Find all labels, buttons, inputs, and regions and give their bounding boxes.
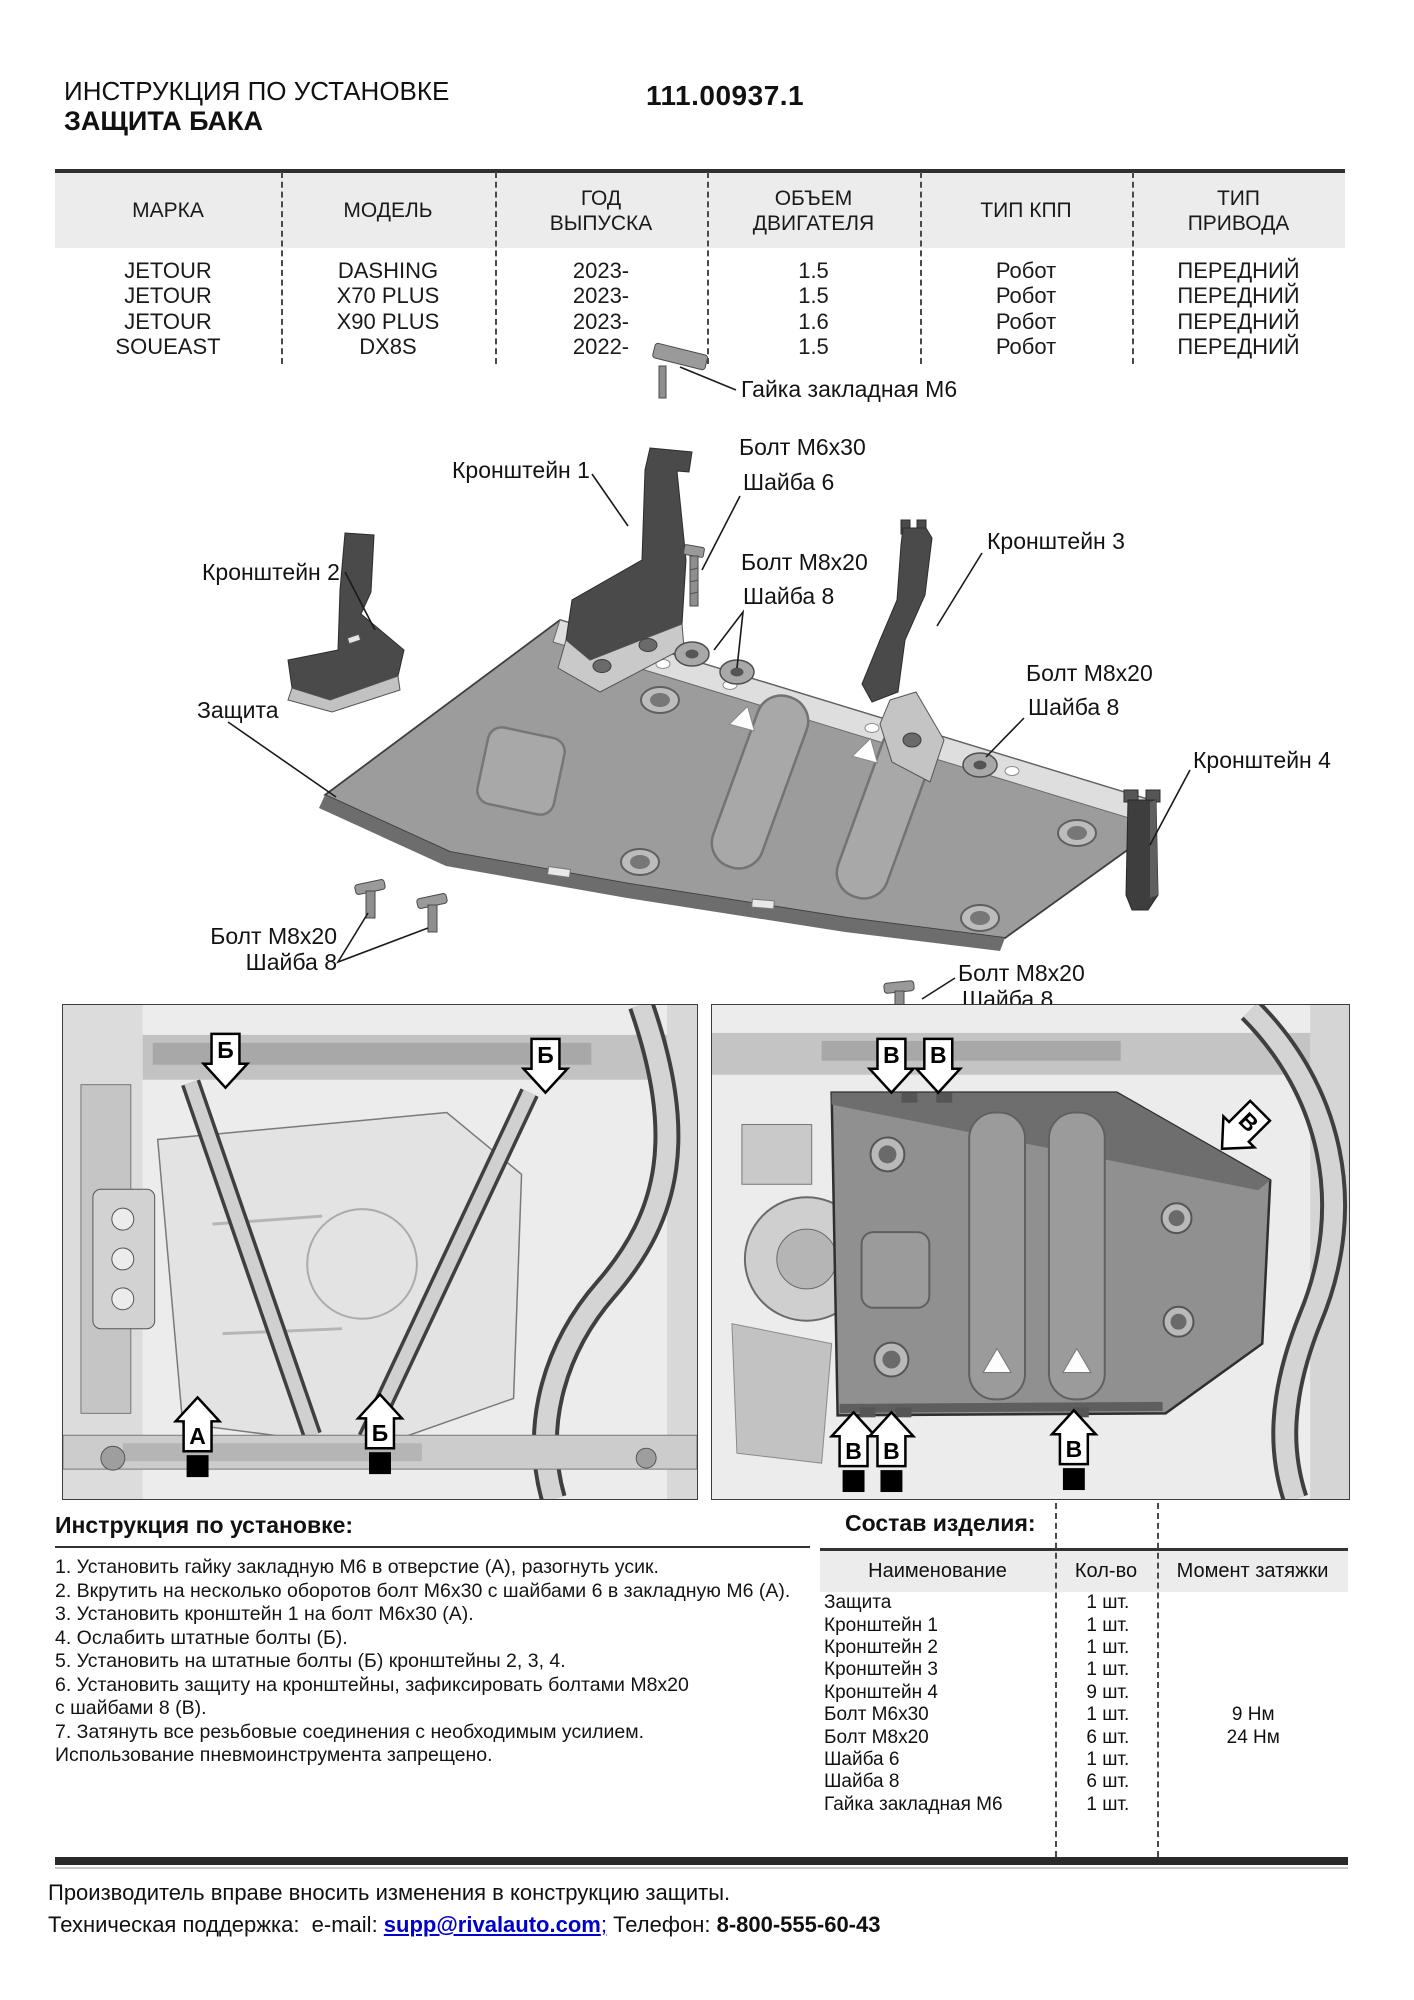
part-torque bbox=[1158, 1771, 1348, 1793]
col-header-year: ГОД ВЫПУСКА bbox=[495, 173, 707, 248]
part-name: Гайка закладная М6 bbox=[820, 1794, 1057, 1816]
parts-table-header: Наименование Кол-во Момент затяжки bbox=[820, 1551, 1348, 1592]
svg-text:Б: Б bbox=[372, 1420, 388, 1446]
svg-text:В: В bbox=[883, 1042, 900, 1068]
svg-text:Б: Б bbox=[537, 1042, 553, 1068]
svg-text:В: В bbox=[845, 1438, 862, 1464]
part-qty: 1 шт. bbox=[1057, 1592, 1158, 1614]
photo-left-art: Б Б А Б bbox=[63, 1005, 697, 1499]
footer-rule-shadow bbox=[55, 1867, 1348, 1869]
part-name: Защита bbox=[820, 1592, 1057, 1614]
support-line: Техническая поддержка: e-mail: supp@riva… bbox=[48, 1912, 880, 1938]
part-name: Кронштейн 4 bbox=[820, 1682, 1057, 1704]
install-step: 3. Установить кронштейн 1 на болт М6х30 … bbox=[55, 1603, 830, 1627]
part-qty: 1 шт. bbox=[1057, 1704, 1158, 1726]
disclaimer-text: Производитель вправе вносить изменения в… bbox=[48, 1880, 730, 1906]
parts-table: Наименование Кол-во Момент затяжки Защит… bbox=[820, 1551, 1348, 1816]
bolt-m6x30-icon bbox=[683, 544, 704, 606]
label-bracket-2: Кронштейн 2 bbox=[202, 559, 340, 585]
part-qty: 1 шт. bbox=[1057, 1794, 1158, 1816]
table-divider bbox=[1055, 1503, 1057, 1857]
part-qty: 1 шт. bbox=[1057, 1637, 1158, 1659]
label-bolt-m8x20-right: Болт М8х20 bbox=[1026, 660, 1153, 686]
parts-col-qty: Кол-во bbox=[1055, 1551, 1157, 1592]
label-bolt-m8x20-left: Болт М8х20 bbox=[741, 549, 868, 575]
part-name: Кронштейн 2 bbox=[820, 1637, 1057, 1659]
svg-text:В: В bbox=[1066, 1436, 1083, 1462]
part-number: 111.00937.1 bbox=[646, 80, 804, 112]
parts-row: Кронштейн 2 1 шт. bbox=[820, 1637, 1348, 1659]
label-washer-8-bl: Шайба 8 bbox=[246, 949, 337, 975]
label-bracket-4: Кронштейн 4 bbox=[1193, 747, 1331, 773]
part-torque bbox=[1158, 1592, 1348, 1614]
parts-row: Защита 1 шт. bbox=[820, 1592, 1348, 1614]
install-heading: Инструкция по установке: bbox=[55, 1512, 353, 1539]
installed-shield-plate bbox=[832, 1093, 1271, 1418]
install-step: 5. Установить на штатные болты (Б) кронш… bbox=[55, 1650, 830, 1674]
footer-rule bbox=[55, 1857, 1348, 1865]
part-torque bbox=[1158, 1659, 1348, 1681]
support-prefix: Техническая поддержка: e-mail: bbox=[48, 1912, 384, 1937]
label-washer-8-right: Шайба 8 bbox=[1028, 694, 1119, 720]
parts-row: Кронштейн 1 1 шт. bbox=[820, 1614, 1348, 1636]
label-clinch-nut: Гайка закладная М6 bbox=[741, 376, 957, 402]
part-name: Шайба 6 bbox=[820, 1749, 1057, 1771]
parts-row: Кронштейн 3 1 шт. bbox=[820, 1659, 1348, 1681]
install-step: 6. Установить защиту на кронштейны, зафи… bbox=[55, 1674, 830, 1698]
install-step: 2. Вкрутить на несколько оборотов болт М… bbox=[55, 1580, 830, 1604]
support-email-link[interactable]: supp@rivalauto.com bbox=[384, 1912, 601, 1937]
instruction-sheet: ИНСТРУКЦИЯ ПО УСТАНОВКЕ ЗАЩИТА БАКА 111.… bbox=[0, 0, 1414, 2000]
parts-row: Кронштейн 4 9 шт. bbox=[820, 1682, 1348, 1704]
vehicle-table-header: МАРКА МОДЕЛЬ ГОД ВЫПУСКА ОБЪЕМ ДВИГАТЕЛЯ… bbox=[55, 173, 1345, 248]
parts-col-torque: Момент затяжки bbox=[1157, 1551, 1348, 1592]
support-phone: 8-800-555-60-43 bbox=[717, 1912, 881, 1937]
label-shield: Защита bbox=[197, 697, 279, 723]
clinch-nut-icon bbox=[652, 343, 708, 398]
col-header-drive: ТИП ПРИВОДА bbox=[1132, 173, 1345, 248]
part-torque bbox=[1158, 1614, 1348, 1636]
col-header-brand: МАРКА bbox=[55, 173, 281, 248]
parts-row: Шайба 6 1 шт. bbox=[820, 1749, 1348, 1771]
install-step: 1. Установить гайку закладную М6 в отвер… bbox=[55, 1556, 830, 1580]
part-qty: 1 шт. bbox=[1057, 1659, 1158, 1681]
install-step: Использование пневмоинструмента запрещен… bbox=[55, 1744, 830, 1768]
label-washer-6: Шайба 6 bbox=[743, 469, 834, 495]
part-torque: 9 Нм bbox=[1158, 1704, 1348, 1726]
part-qty: 6 шт. bbox=[1057, 1771, 1158, 1793]
label-bolt-m8x20-br: Болт М8х20 bbox=[958, 960, 1085, 986]
label-bracket-1: Кронштейн 1 bbox=[452, 457, 590, 483]
part-name: Кронштейн 3 bbox=[820, 1659, 1057, 1681]
part-name: Кронштейн 1 bbox=[820, 1614, 1057, 1636]
install-step: с шайбами 8 (В). bbox=[55, 1697, 830, 1721]
parts-col-name: Наименование bbox=[820, 1551, 1055, 1592]
svg-text:В: В bbox=[930, 1042, 947, 1068]
part-torque bbox=[1158, 1637, 1348, 1659]
install-step: 4. Ослабить штатные болты (Б). bbox=[55, 1627, 830, 1651]
parts-row: Шайба 8 6 шт. bbox=[820, 1771, 1348, 1793]
label-bracket-3: Кронштейн 3 bbox=[987, 528, 1125, 554]
photo-left-underbody: Б Б А Б bbox=[62, 1004, 698, 1500]
svg-text:Б: Б bbox=[217, 1037, 233, 1063]
parts-heading: Состав изделия: bbox=[845, 1510, 1036, 1537]
install-rule bbox=[55, 1546, 810, 1548]
doc-type-title: ИНСТРУКЦИЯ ПО УСТАНОВКЕ bbox=[64, 76, 449, 107]
part-qty: 9 шт. bbox=[1057, 1682, 1158, 1704]
parts-row: Болт М6х30 1 шт. 9 Нм bbox=[820, 1704, 1348, 1726]
exploded-diagram: Гайка закладная М6 Кронштейн 1 Болт М6х3… bbox=[0, 270, 1414, 1020]
part-qty: 6 шт. bbox=[1057, 1726, 1158, 1748]
label-bolt-m6x30: Болт М6х30 bbox=[739, 434, 866, 460]
label-washer-8-left: Шайба 8 bbox=[743, 583, 834, 609]
phone-label: Телефон: bbox=[607, 1912, 717, 1937]
col-header-engine: ОБЪЕМ ДВИГАТЕЛЯ bbox=[707, 173, 920, 248]
part-torque bbox=[1158, 1794, 1348, 1816]
install-step: 7. Затянуть все резьбовые соединения с н… bbox=[55, 1721, 830, 1745]
svg-text:В: В bbox=[883, 1438, 900, 1464]
part-name: Шайба 8 bbox=[820, 1771, 1057, 1793]
col-header-model: МОДЕЛЬ bbox=[281, 173, 495, 248]
part-torque bbox=[1158, 1749, 1348, 1771]
part-qty: 1 шт. bbox=[1057, 1749, 1158, 1771]
part-name: Болт М8х20 bbox=[820, 1726, 1057, 1748]
svg-text:А: А bbox=[189, 1423, 206, 1449]
table-divider bbox=[1157, 1503, 1159, 1857]
photo-right-art: В В В В В В bbox=[712, 1005, 1349, 1499]
parts-row: Гайка закладная М6 1 шт. bbox=[820, 1794, 1348, 1816]
product-title: ЗАЩИТА БАКА bbox=[64, 106, 263, 137]
label-bolt-m8x20-bl: Болт М8х20 bbox=[210, 923, 337, 949]
part-name: Болт М6х30 bbox=[820, 1704, 1057, 1726]
install-steps: 1. Установить гайку закладную М6 в отвер… bbox=[55, 1556, 830, 1768]
photo-right-underbody: В В В В В В bbox=[711, 1004, 1350, 1500]
bracket-4-drawing bbox=[1124, 790, 1160, 910]
part-torque: 24 Нм bbox=[1158, 1726, 1348, 1748]
parts-row: Болт М8х20 6 шт. 24 Нм bbox=[820, 1726, 1348, 1748]
col-header-gearbox: ТИП КПП bbox=[920, 173, 1132, 248]
part-qty: 1 шт. bbox=[1057, 1614, 1158, 1636]
part-torque bbox=[1158, 1682, 1348, 1704]
